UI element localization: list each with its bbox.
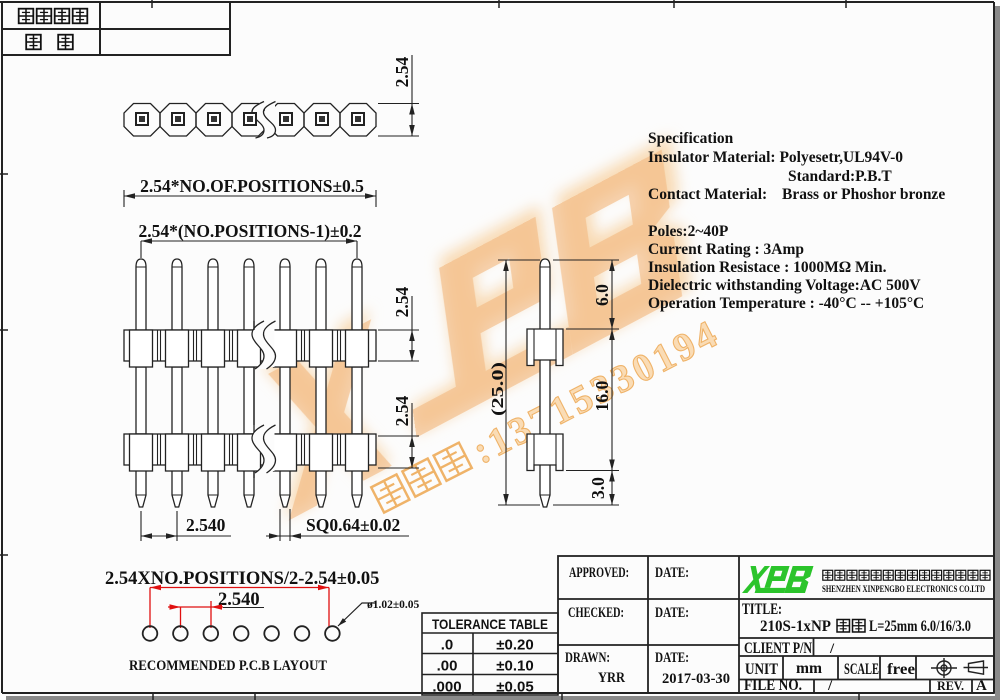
svg-text:Insulation Resistace : 1000MΩ: Insulation Resistace : 1000MΩ Min. (648, 259, 887, 276)
svg-text:DATE:: DATE: (655, 650, 689, 666)
svg-text:2.54XNO.POSITIONS/2-2.54±0.05: 2.54XNO.POSITIONS/2-2.54±0.05 (105, 569, 379, 589)
svg-text:2.54*NO.OF.POSITIONS±0.5: 2.54*NO.OF.POSITIONS±0.5 (140, 176, 364, 196)
svg-text:Dielectric withstanding Volta: Dielectric withstanding Voltage:AC 500V (648, 277, 921, 294)
svg-text:Insulator Material: Polyesetr,: Insulator Material: Polyesetr,UL94V-0 (648, 149, 903, 166)
svg-text:Poles:2~40P: Poles:2~40P (648, 223, 729, 240)
svg-text:TITLE:: TITLE: (742, 601, 782, 618)
svg-text:2.54: 2.54 (392, 56, 412, 87)
svg-text:Current Rating : 3Amp: Current Rating : 3Amp (648, 241, 804, 258)
svg-text:2.54: 2.54 (392, 286, 412, 317)
svg-text:16.0: 16.0 (592, 380, 612, 411)
svg-text:REV.: REV. (937, 678, 964, 693)
svg-text:Standard:P.B.T: Standard:P.B.T (788, 168, 892, 185)
svg-text:Brass or Phoshor bronze: Brass or Phoshor bronze (782, 186, 945, 203)
svg-text:/: / (829, 641, 835, 657)
svg-text:DATE:: DATE: (655, 605, 689, 621)
svg-text:UNIT: UNIT (745, 661, 779, 678)
svg-text:Specification: Specification (648, 130, 734, 147)
svg-text:Operation Temperature : -40°C: Operation Temperature : -40°C -- +105°C (648, 295, 924, 312)
svg-text:SCALE: SCALE (844, 661, 879, 678)
svg-text:2.540: 2.540 (186, 515, 226, 535)
svg-text:Contact Material:: Contact Material: (648, 186, 767, 203)
svg-text:TOLERANCE TABLE: TOLERANCE TABLE (432, 617, 548, 632)
svg-text:6.0: 6.0 (592, 284, 612, 306)
svg-text:free: free (887, 661, 915, 678)
svg-text:±0.05: ±0.05 (496, 679, 533, 696)
svg-text:2.54: 2.54 (392, 395, 412, 426)
svg-text:.000: .000 (432, 679, 461, 696)
svg-text:APPROVED:: APPROVED: (569, 565, 629, 581)
svg-text:SQ0.64±0.02: SQ0.64±0.02 (306, 515, 400, 535)
svg-text:YRR: YRR (598, 670, 625, 686)
svg-text:2.54*(NO.POSITIONS-1)±0.2: 2.54*(NO.POSITIONS-1)±0.2 (138, 221, 361, 241)
svg-text:.0: .0 (441, 637, 454, 654)
svg-text:SHENZHEN XINPENGBO ELECTRONICS: SHENZHEN XINPENGBO ELECTRONICS CO.LTD (822, 585, 985, 595)
svg-text:(25.0): (25.0) (488, 362, 507, 416)
svg-text:2017-03-30: 2017-03-30 (662, 671, 730, 687)
svg-text:.00: .00 (437, 658, 458, 675)
svg-text:±0.10: ±0.10 (496, 658, 533, 675)
svg-text:ø1.02±0.05: ø1.02±0.05 (367, 599, 420, 611)
svg-text:A: A (976, 678, 987, 694)
svg-text:L=25mm 6.0/16/3.0: L=25mm 6.0/16/3.0 (869, 618, 971, 635)
svg-text:mm: mm (796, 660, 822, 677)
svg-text:CLIENT P/N: CLIENT P/N (744, 640, 812, 657)
svg-text:±0.20: ±0.20 (496, 637, 533, 654)
svg-text:CHECKED:: CHECKED: (568, 605, 624, 621)
svg-text:RECOMMENDED P.C.B LAYOUT: RECOMMENDED P.C.B LAYOUT (129, 658, 327, 674)
svg-text:DRAWN:: DRAWN: (565, 650, 610, 666)
svg-text:/: / (827, 678, 833, 694)
svg-text:DATE:: DATE: (655, 565, 689, 581)
svg-text:FILE NO.: FILE NO. (744, 677, 802, 694)
svg-text:3.0: 3.0 (588, 477, 608, 499)
svg-text:210S-1xNP: 210S-1xNP (760, 618, 832, 635)
